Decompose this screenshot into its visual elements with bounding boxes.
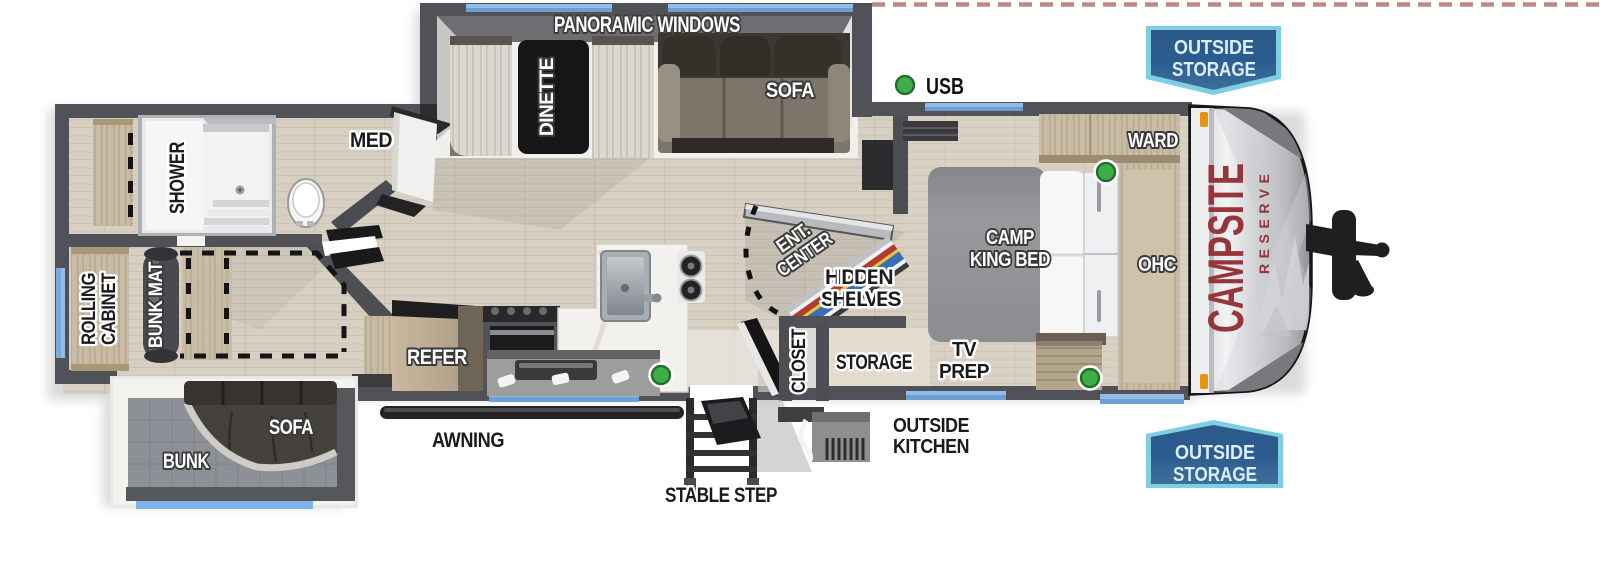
svg-text:STORAGE: STORAGE (836, 351, 912, 374)
svg-text:OUTSIDE: OUTSIDE (1174, 37, 1254, 59)
svg-text:RESERVE: RESERVE (1256, 174, 1272, 274)
svg-text:USB: USB (926, 73, 964, 99)
svg-text:REFER: REFER (407, 346, 467, 369)
svg-text:ROLLING: ROLLING (79, 273, 100, 345)
svg-text:CLOSET: CLOSET (789, 328, 810, 393)
svg-text:BUNK: BUNK (163, 450, 209, 473)
svg-text:HIDDEN: HIDDEN (825, 266, 893, 289)
svg-text:KING BED: KING BED (970, 249, 1050, 271)
svg-text:SHELVES: SHELVES (821, 288, 901, 311)
svg-text:STORAGE: STORAGE (1173, 464, 1257, 486)
svg-text:STORAGE: STORAGE (1172, 59, 1256, 81)
svg-text:SOFA: SOFA (269, 416, 313, 439)
svg-text:DINETTE: DINETTE (537, 58, 558, 136)
svg-text:SHOWER: SHOWER (166, 142, 189, 214)
svg-text:OHC: OHC (1138, 254, 1176, 276)
svg-text:AWNING: AWNING (432, 429, 504, 452)
svg-text:TV: TV (952, 339, 977, 361)
svg-text:STABLE STEP: STABLE STEP (665, 484, 777, 507)
svg-text:CAMPSITE: CAMPSITE (1198, 163, 1254, 333)
svg-text:CABINET: CABINET (99, 272, 120, 345)
svg-text:WARD: WARD (1128, 130, 1178, 152)
svg-text:PREP: PREP (939, 361, 989, 383)
svg-text:OUTSIDE: OUTSIDE (893, 415, 969, 437)
svg-text:CAMP: CAMP (986, 227, 1034, 249)
svg-text:SOFA: SOFA (766, 79, 814, 102)
svg-text:OUTSIDE: OUTSIDE (1175, 442, 1255, 464)
svg-text:KITCHEN: KITCHEN (893, 436, 969, 458)
svg-text:MED: MED (350, 129, 392, 152)
svg-text:BUNK MAT: BUNK MAT (146, 261, 167, 348)
